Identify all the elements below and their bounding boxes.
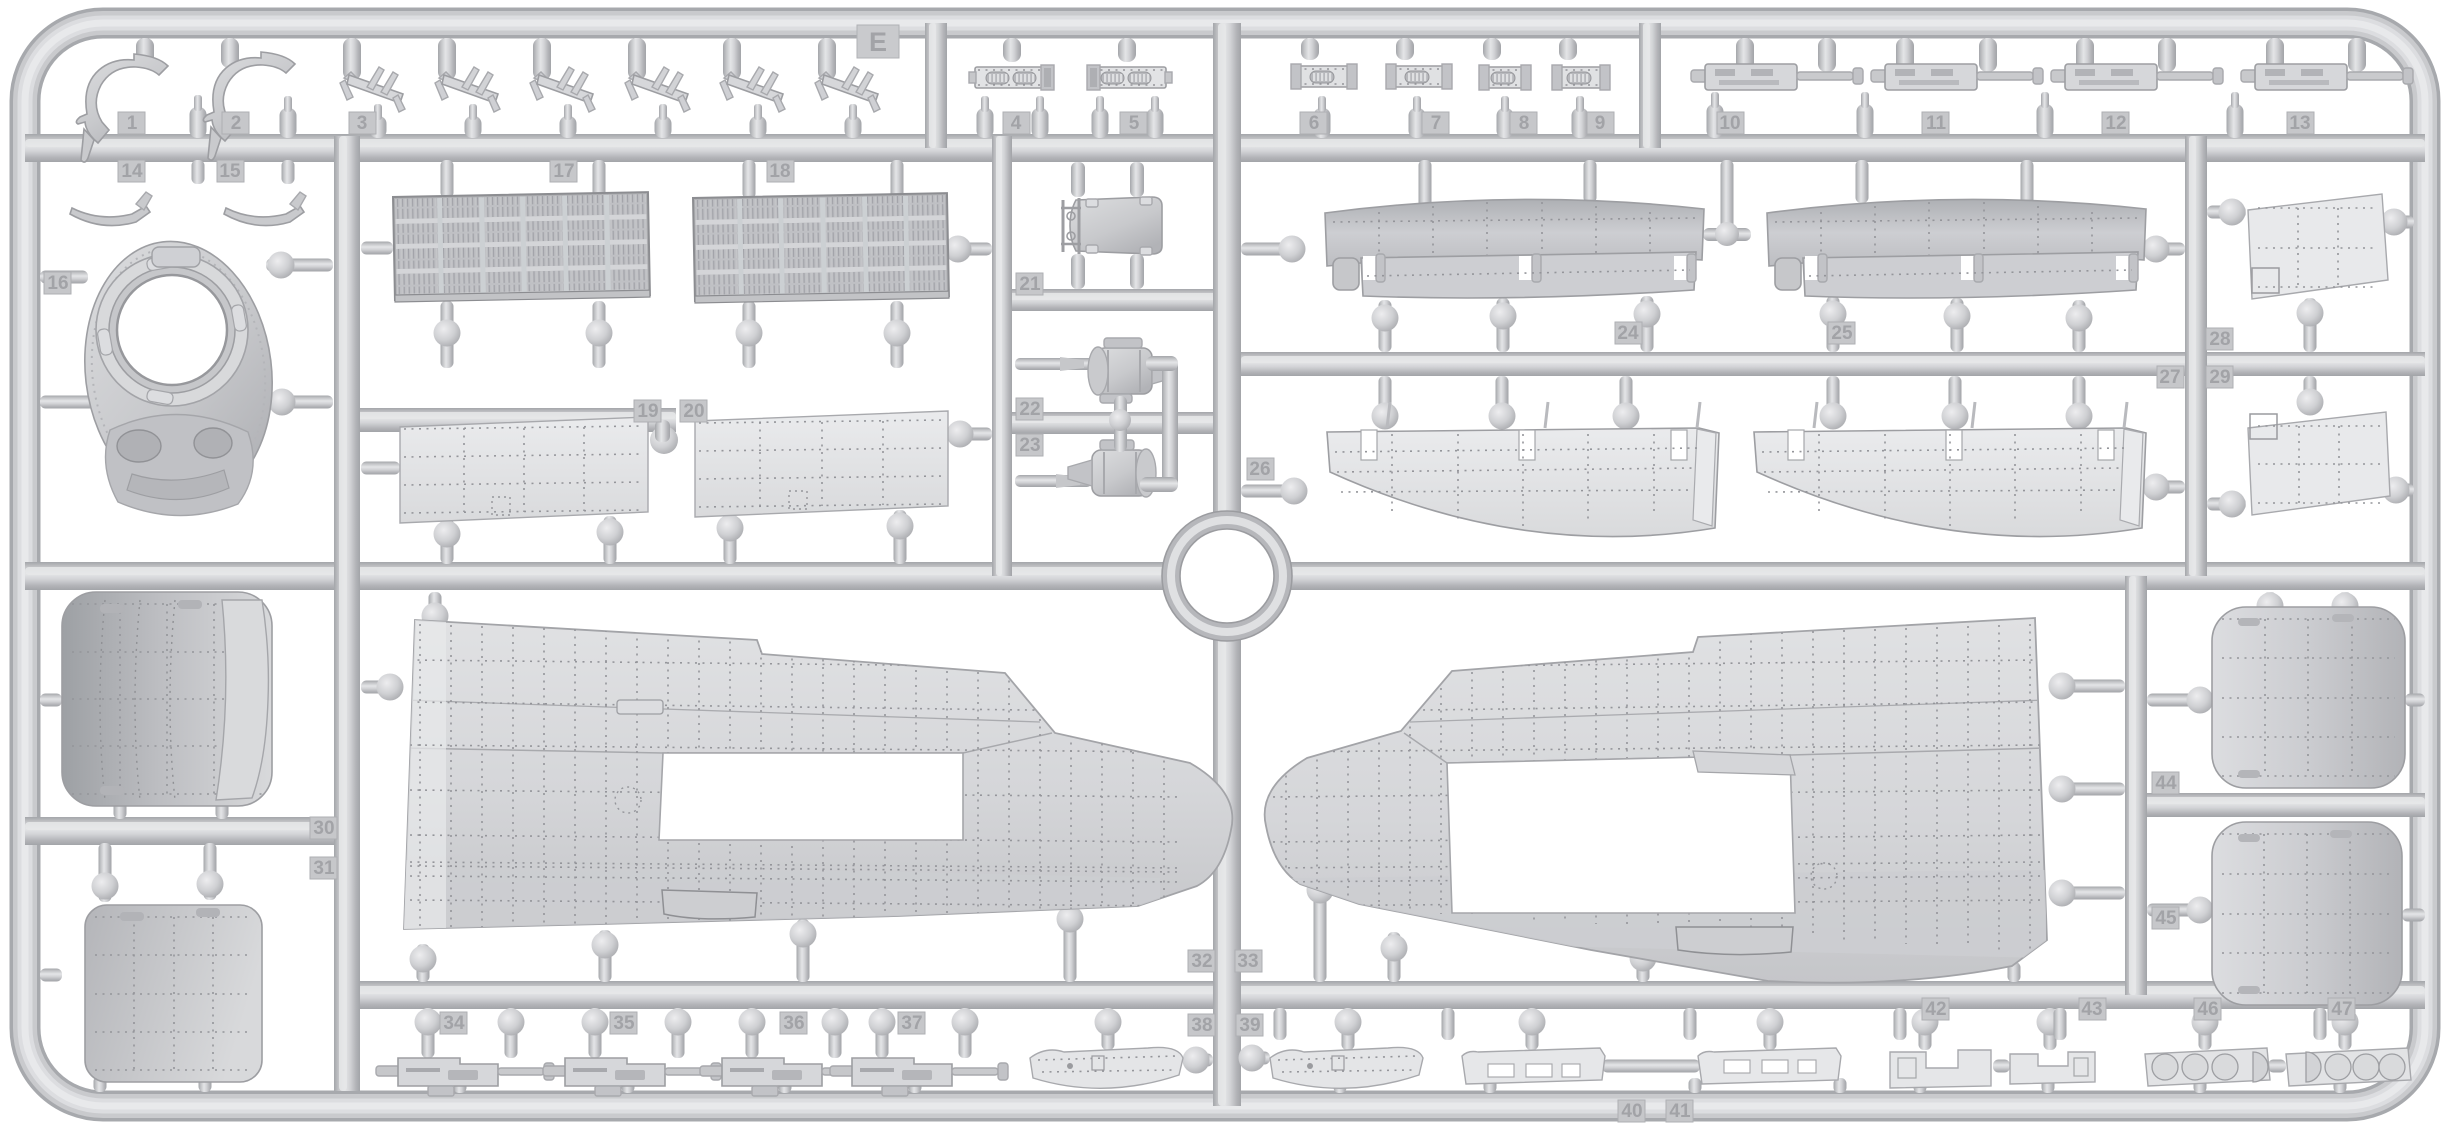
svg-text:32: 32	[1191, 951, 1212, 972]
svg-text:37: 37	[901, 1013, 922, 1034]
svg-text:14: 14	[121, 161, 143, 182]
svg-text:38: 38	[1191, 1015, 1212, 1036]
svg-text:29: 29	[2209, 367, 2230, 388]
svg-text:5: 5	[1129, 113, 1140, 134]
svg-text:15: 15	[219, 161, 241, 182]
svg-text:43: 43	[2081, 999, 2102, 1020]
svg-text:21: 21	[1019, 274, 1041, 295]
svg-text:10: 10	[1719, 113, 1740, 134]
svg-text:41: 41	[1669, 1101, 1691, 1122]
svg-text:12: 12	[2105, 113, 2126, 134]
svg-text:36: 36	[783, 1013, 804, 1034]
svg-text:7: 7	[1431, 113, 1442, 134]
svg-text:45: 45	[2155, 908, 2177, 929]
svg-text:40: 40	[1621, 1101, 1642, 1122]
svg-text:44: 44	[2155, 773, 2177, 794]
svg-text:27: 27	[2159, 367, 2180, 388]
svg-text:17: 17	[553, 161, 574, 182]
svg-text:47: 47	[2331, 999, 2352, 1020]
svg-text:E: E	[869, 27, 887, 57]
svg-text:3: 3	[357, 113, 368, 134]
svg-text:11: 11	[1926, 113, 1947, 134]
svg-text:46: 46	[2197, 999, 2218, 1020]
svg-text:33: 33	[1237, 951, 1258, 972]
svg-text:22: 22	[1019, 399, 1040, 420]
svg-text:6: 6	[1309, 113, 1320, 134]
svg-text:34: 34	[443, 1013, 465, 1034]
svg-text:13: 13	[2289, 113, 2310, 134]
svg-text:18: 18	[769, 161, 790, 182]
svg-text:4: 4	[1011, 113, 1022, 134]
svg-text:20: 20	[683, 401, 704, 422]
svg-text:28: 28	[2209, 329, 2230, 350]
svg-text:16: 16	[47, 273, 68, 294]
svg-text:42: 42	[1925, 999, 1946, 1020]
svg-text:39: 39	[1239, 1015, 1260, 1036]
svg-text:9: 9	[1595, 113, 1606, 134]
svg-text:23: 23	[1019, 435, 1040, 456]
svg-text:8: 8	[1519, 113, 1530, 134]
svg-text:30: 30	[313, 818, 334, 839]
svg-text:24: 24	[1617, 323, 1639, 344]
svg-text:31: 31	[313, 858, 335, 879]
svg-text:2: 2	[231, 113, 242, 134]
svg-text:19: 19	[637, 401, 658, 422]
svg-text:25: 25	[1831, 323, 1853, 344]
svg-text:35: 35	[613, 1013, 635, 1034]
svg-text:26: 26	[1249, 459, 1270, 480]
svg-text:1: 1	[127, 113, 138, 134]
